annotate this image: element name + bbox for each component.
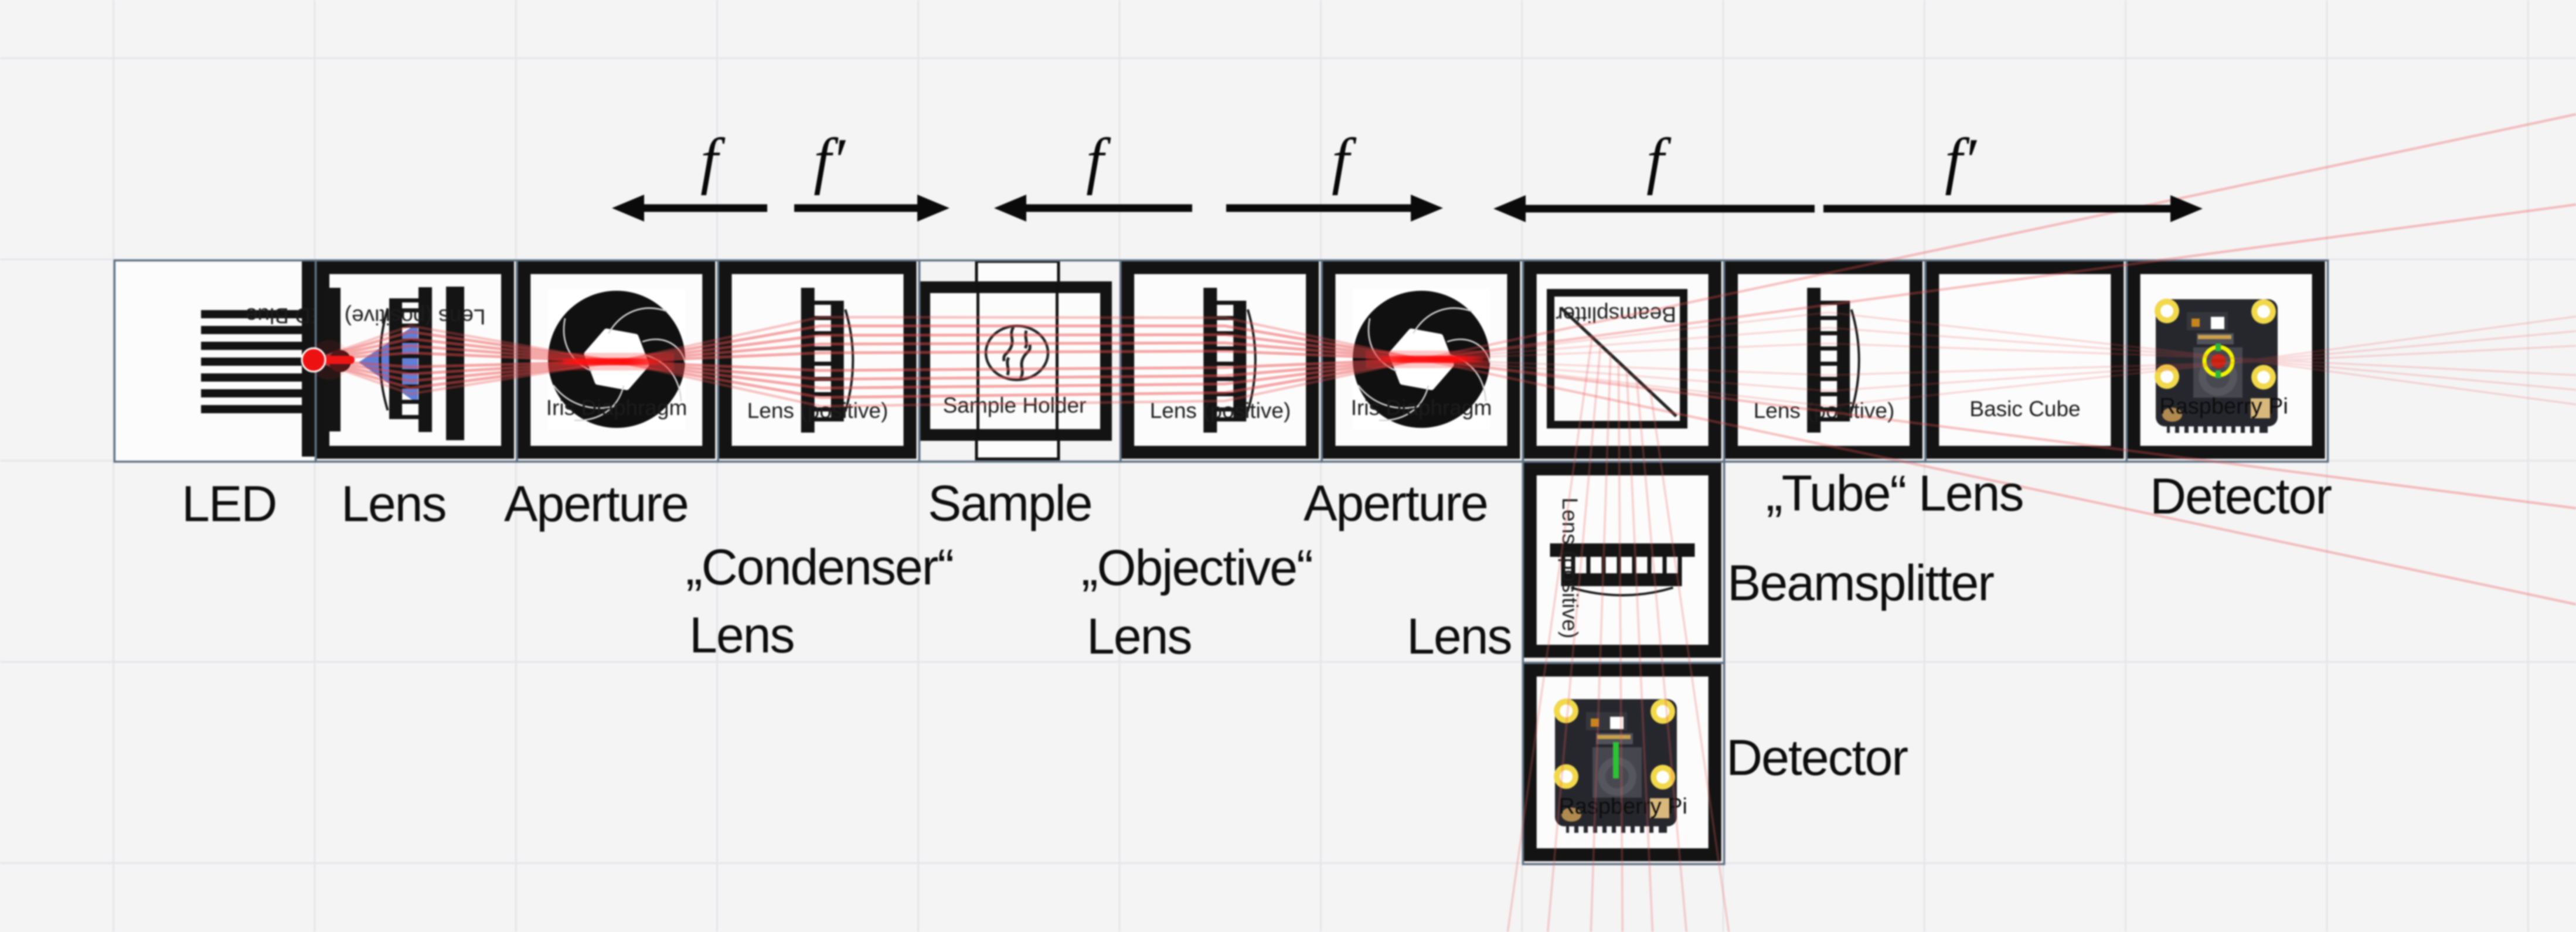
- svg-text:Aperture: Aperture: [1304, 475, 1488, 532]
- svg-text:Lens (positive): Lens (positive): [747, 399, 889, 423]
- svg-text:Lens (positive): Lens (positive): [1558, 498, 1582, 639]
- svg-text:„Objective“: „Objective“: [1081, 540, 1312, 596]
- svg-text:f′: f′: [814, 126, 846, 196]
- svg-text:„Condenser“: „Condenser“: [686, 539, 953, 596]
- svg-text:„Tube“ Lens: „Tube“ Lens: [1766, 465, 2023, 522]
- svg-text:Detector: Detector: [1726, 730, 1908, 786]
- svg-text:Aperture: Aperture: [504, 476, 688, 532]
- svg-text:Beamsplitter: Beamsplitter: [1727, 555, 1994, 611]
- svg-text:Iris Diaphragm: Iris Diaphragm: [1351, 396, 1492, 420]
- svg-text:Lens: Lens: [1087, 608, 1192, 665]
- svg-text:Sample: Sample: [928, 475, 1092, 532]
- svg-text:Detector: Detector: [2150, 468, 2332, 525]
- svg-text:f′: f′: [1945, 126, 1977, 196]
- svg-text:Lens: Lens: [341, 476, 446, 532]
- svg-text:Iris Diaphragm: Iris Diaphragm: [546, 396, 688, 420]
- svg-text:Lens: Lens: [689, 607, 794, 664]
- svg-text:Beamsplitter: Beamsplitter: [1556, 302, 1676, 326]
- svg-text:Lens (positive): Lens (positive): [345, 305, 486, 329]
- svg-text:Lens: Lens: [1407, 608, 1512, 665]
- svg-text:LED: LED: [182, 476, 276, 532]
- svg-text:Basic Cube: Basic Cube: [1969, 397, 2080, 421]
